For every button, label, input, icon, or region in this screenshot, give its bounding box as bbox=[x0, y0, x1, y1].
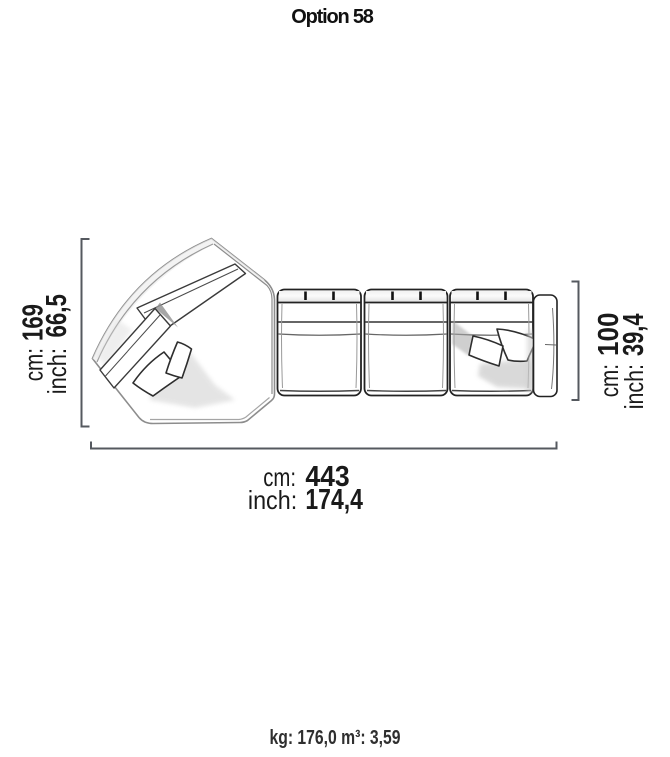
svg-text:inch:: inch: bbox=[42, 348, 72, 394]
svg-text:inch:: inch: bbox=[619, 364, 649, 409]
svg-text:39,4: 39,4 bbox=[618, 314, 650, 357]
svg-text:kg: 176,0 m³: 3,59: kg: 176,0 m³: 3,59 bbox=[270, 727, 401, 749]
svg-text:inch:: inch: bbox=[248, 485, 297, 515]
svg-text:Option 58: Option 58 bbox=[291, 6, 374, 28]
svg-text:174,4: 174,4 bbox=[305, 484, 363, 516]
svg-text:66,5: 66,5 bbox=[41, 294, 73, 337]
